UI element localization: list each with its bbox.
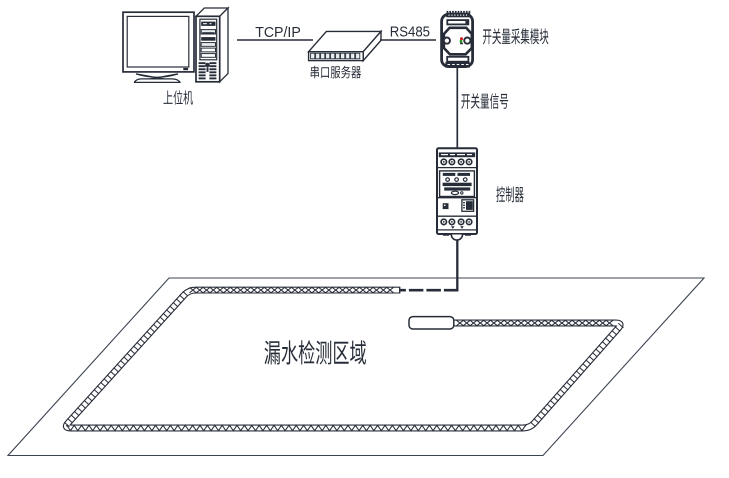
svg-text:TCP/IP: TCP/IP — [255, 24, 301, 41]
svg-text:RS485: RS485 — [390, 25, 430, 41]
